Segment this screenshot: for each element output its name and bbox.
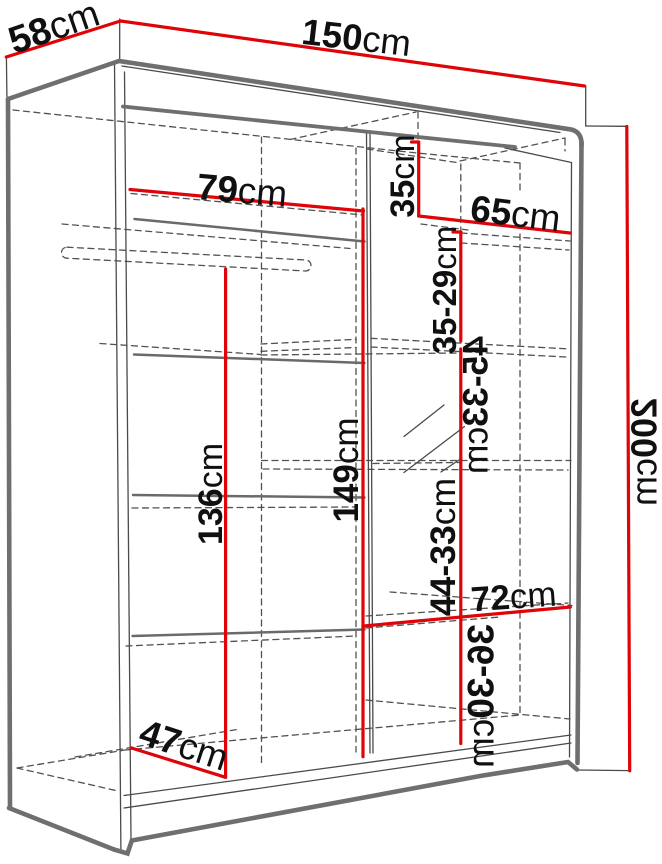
svg-text:35-29cm: 35-29cm <box>426 226 463 354</box>
svg-text:44-33cm: 44-33cm <box>423 478 463 616</box>
svg-text:149cm: 149cm <box>327 417 366 522</box>
svg-text:136cm: 136cm <box>192 443 230 545</box>
svg-text:45-33cm: 45-33cm <box>456 336 496 474</box>
svg-text:72cm: 72cm <box>470 575 558 620</box>
svg-text:35cm: 35cm <box>384 134 422 217</box>
svg-text:36-30cm: 36-30cm <box>461 624 502 768</box>
svg-text:79cm: 79cm <box>195 166 289 215</box>
svg-text:200cm: 200cm <box>624 398 662 506</box>
